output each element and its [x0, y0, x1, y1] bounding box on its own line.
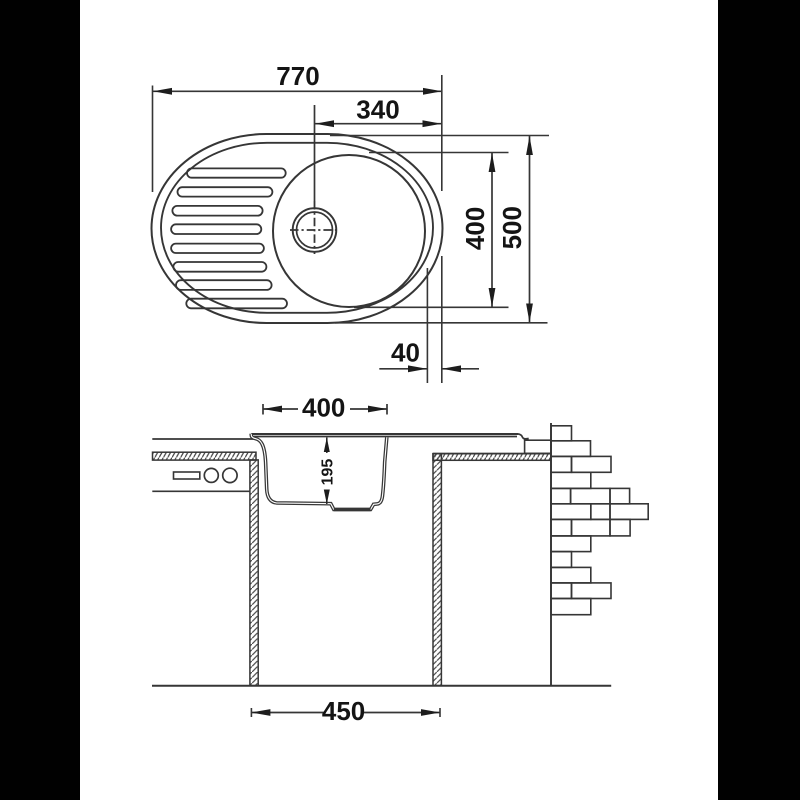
- svg-text:770: 770: [276, 61, 319, 91]
- svg-text:500: 500: [497, 206, 527, 249]
- svg-text:340: 340: [356, 94, 399, 124]
- svg-text:195: 195: [320, 459, 337, 486]
- svg-text:40: 40: [391, 338, 420, 368]
- svg-text:400: 400: [460, 207, 490, 250]
- svg-text:450: 450: [322, 696, 365, 726]
- svg-text:400: 400: [302, 393, 345, 423]
